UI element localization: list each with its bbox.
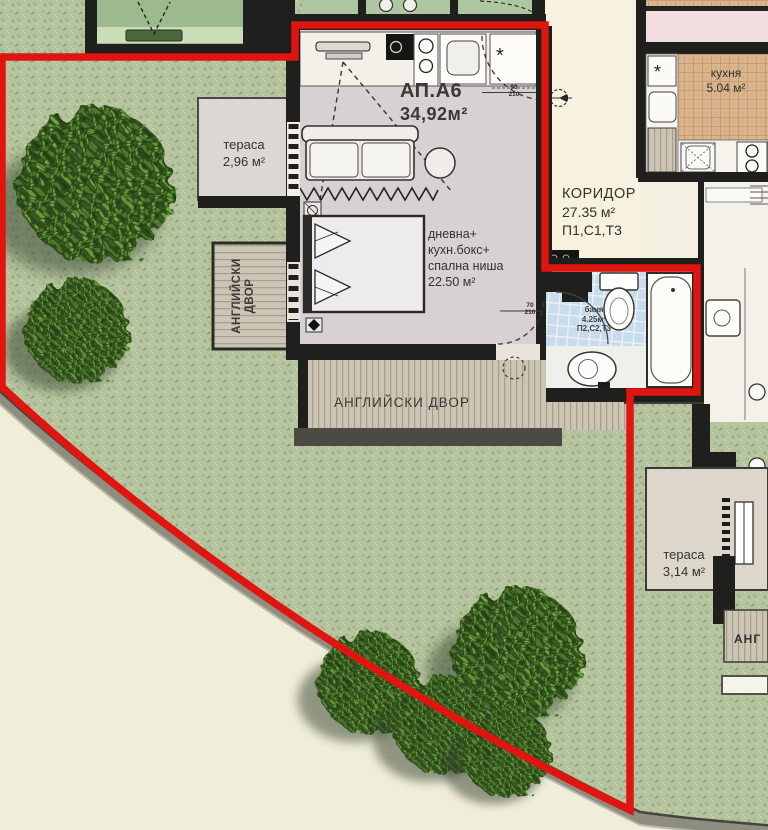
valve-icon <box>306 318 322 332</box>
site-plan: * <box>0 0 768 830</box>
bath-door-dimension: 70 210 <box>518 302 542 316</box>
kitchen-label: кухня 5.04 м² <box>694 66 758 96</box>
appliance-icon <box>649 92 676 122</box>
terrace-left-label: тераса 2,96 м² <box>204 136 284 170</box>
apartment-a6: * <box>286 14 552 379</box>
english-yard-partial-label: АНГ <box>734 632 761 646</box>
english-yard-bottom-label: АНГЛИЙСКИ ДВОР <box>334 395 470 410</box>
english-yard-left-label: АНГЛИЙСКИ ДВОР <box>231 238 257 354</box>
stove-icon <box>749 384 765 400</box>
bed <box>304 216 424 312</box>
bathroom-label: баня 4.25м² П2,С2,Т3 <box>566 305 622 334</box>
fridge-icon <box>648 56 676 86</box>
apartment-id: АП.А6 <box>400 80 468 103</box>
terrace-right-label: тераса 3,14 м² <box>646 546 722 580</box>
apartment-label: АП.А6 34,92м² <box>400 80 468 126</box>
sink-icon <box>681 143 715 172</box>
entry-door-dimension: 90 210 <box>502 84 526 98</box>
corridor-label: КОРИДОР 27.35 м² П1,С1,Т3 <box>562 185 636 239</box>
living-room-label: дневна+ кухн.бокс+ спална ниша 22.50 м² <box>428 226 503 290</box>
site-plan-canvas: * <box>0 0 768 830</box>
apartment-area: 34,92м² <box>400 103 468 126</box>
washer-icon <box>380 0 393 12</box>
stove-icon <box>737 142 767 174</box>
pink-room-floor <box>646 11 768 42</box>
sofa <box>302 126 418 180</box>
coffee-table <box>425 148 455 178</box>
bathtub <box>647 273 695 387</box>
svg-text:*: * <box>496 45 504 67</box>
tv-stand <box>316 42 370 51</box>
cutoff-structure <box>722 676 768 694</box>
window-icon <box>735 502 753 564</box>
washer-icon <box>404 0 417 12</box>
svg-text:*: * <box>654 62 661 82</box>
upper-left-unit <box>85 0 295 60</box>
radiator-icon <box>648 128 676 172</box>
sink-icon <box>706 300 740 336</box>
